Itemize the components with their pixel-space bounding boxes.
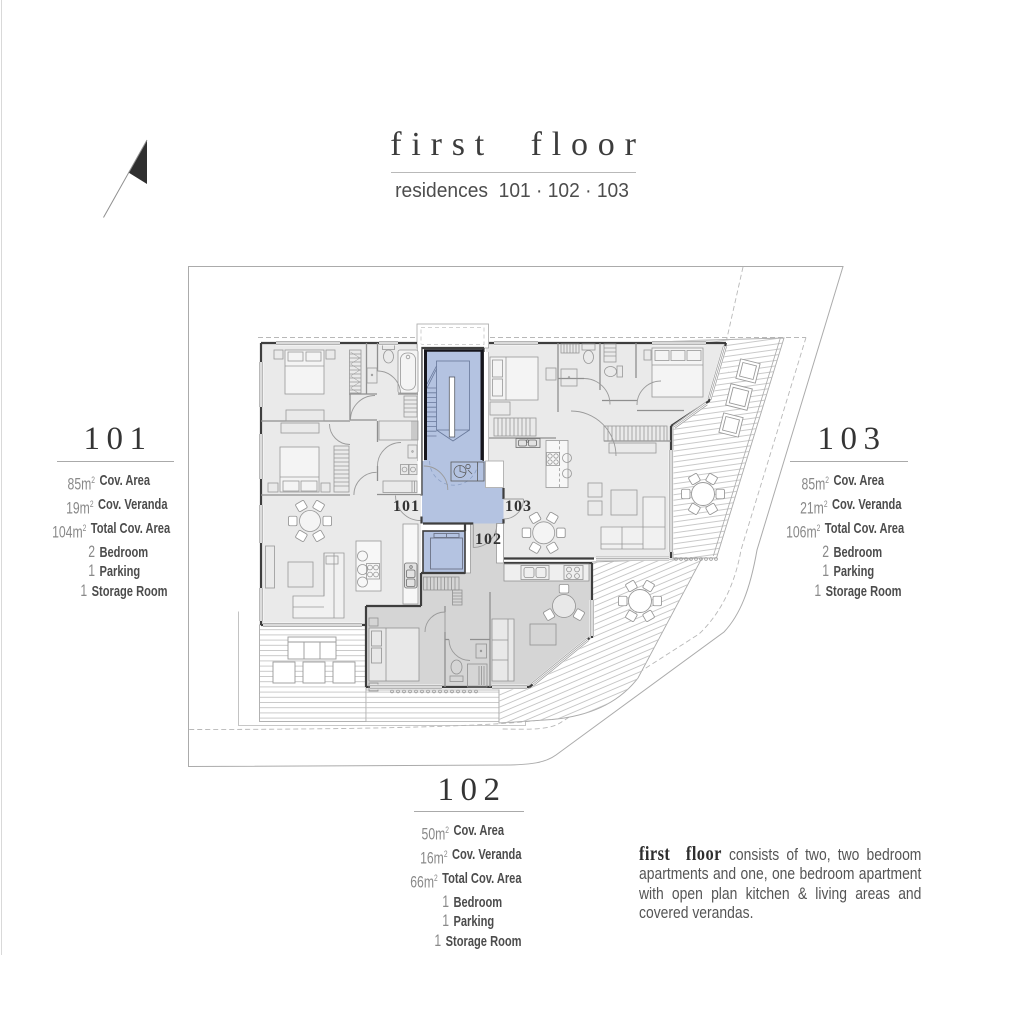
svg-text:101: 101: [393, 498, 420, 515]
svg-text:102: 102: [475, 531, 502, 548]
svg-text:103: 103: [505, 498, 532, 515]
